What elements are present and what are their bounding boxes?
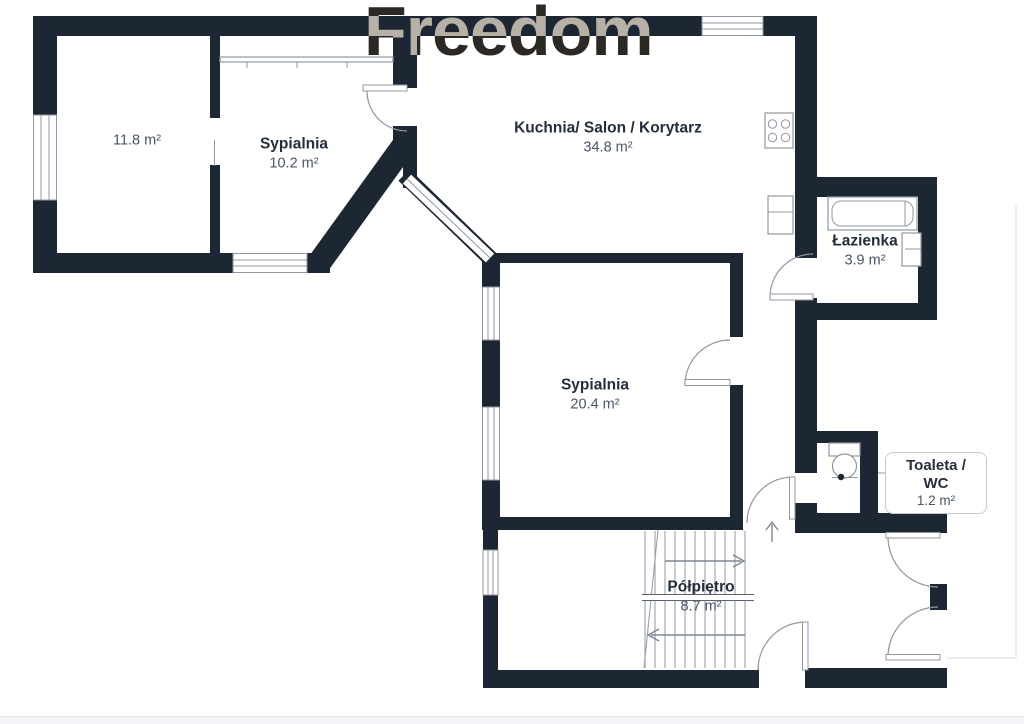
- room-area: 11.8 m²: [113, 132, 161, 151]
- room-name: Łazienka: [832, 232, 897, 252]
- room-name: Kuchnia/ Salon / Korytarz: [514, 119, 702, 139]
- room-labels: 11.8 m² Sypialnia 10.2 m² Kuchnia/ Salon…: [0, 0, 1024, 724]
- room-label-bathroom: Łazienka 3.9 m²: [832, 232, 897, 271]
- room-name: Toaleta / WC: [897, 457, 975, 493]
- room-area: 10.2 m²: [260, 155, 328, 174]
- room-area: 1.2 m²: [897, 493, 975, 509]
- room-area: 34.8 m²: [514, 139, 702, 158]
- room-name: Sypialnia: [561, 376, 629, 396]
- room-area: 20.4 m²: [561, 396, 629, 415]
- room-label-bedroom-small: Sypialnia 10.2 m²: [260, 135, 328, 174]
- room-area: 3.9 m²: [832, 252, 897, 271]
- room-label-room-11-8: 11.8 m²: [113, 132, 161, 151]
- room-name: Sypialnia: [260, 135, 328, 155]
- room-label-bedroom-large: Sypialnia 20.4 m²: [561, 376, 629, 415]
- stairs-landing-rail: [642, 594, 754, 601]
- room-label-kitchen-living: Kuchnia/ Salon / Korytarz 34.8 m²: [514, 119, 702, 158]
- room-label-wc-box: Toaleta / WC 1.2 m²: [885, 452, 987, 514]
- floorplan-canvas: Freedom 11.8 m² Sypialnia 10.2 m² Kuchni…: [0, 0, 1024, 724]
